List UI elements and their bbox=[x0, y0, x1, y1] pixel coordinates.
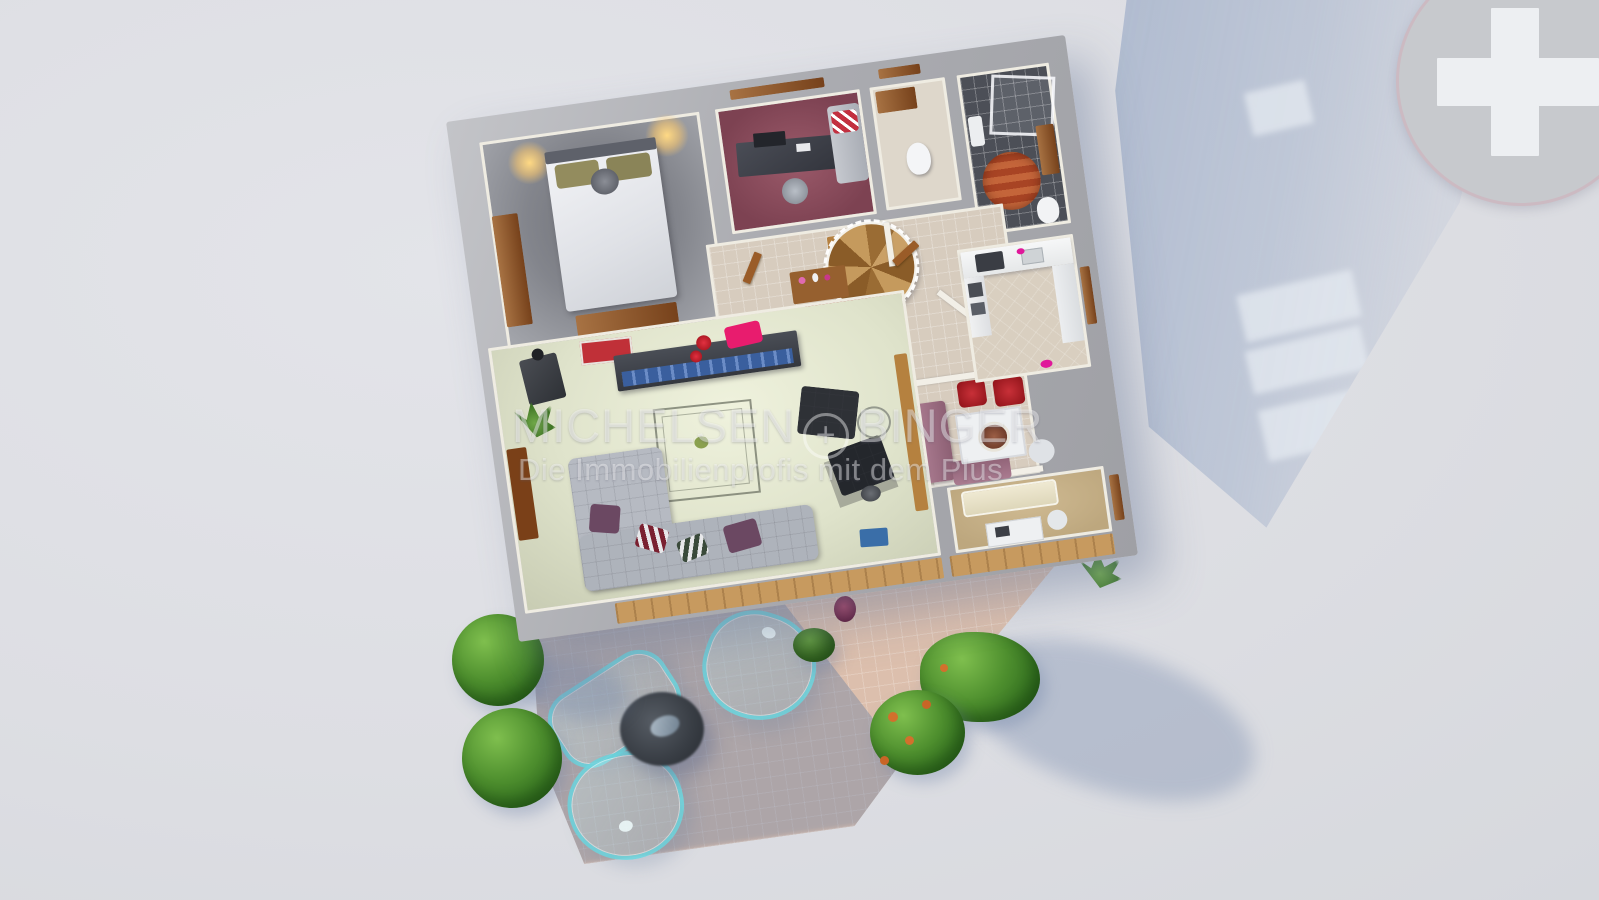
bath-cabinet bbox=[1035, 124, 1060, 176]
wardrobe bbox=[492, 213, 533, 328]
watermark-brand-right: BINGER bbox=[857, 399, 1043, 452]
toilet bbox=[1035, 196, 1060, 225]
window-frame bbox=[1109, 474, 1125, 521]
monitor bbox=[753, 131, 786, 148]
papers bbox=[796, 143, 811, 152]
floorplan-scene: MICHELSEN+BINGER Die Immobilienprofis mi… bbox=[0, 0, 1599, 900]
stone-detail bbox=[647, 711, 682, 740]
watermark-brand-line: MICHELSEN+BINGER bbox=[512, 398, 1043, 459]
blue-glass-doors bbox=[622, 348, 794, 387]
kitchen-tall-units bbox=[964, 276, 992, 338]
blue-doormat bbox=[859, 528, 888, 548]
checkered-pillow bbox=[830, 109, 859, 134]
office-chair bbox=[780, 176, 809, 205]
purple-pillow bbox=[589, 504, 621, 534]
room-bedroom bbox=[479, 112, 728, 353]
red-potted-plant bbox=[834, 596, 856, 622]
window-light-patch bbox=[1244, 80, 1314, 137]
small-bush bbox=[793, 628, 835, 662]
door-leaf bbox=[743, 251, 762, 284]
guest-desk bbox=[985, 516, 1044, 548]
pink-item bbox=[1040, 359, 1053, 369]
daybed bbox=[827, 102, 870, 184]
washbasin bbox=[967, 115, 985, 147]
cooktop bbox=[975, 251, 1005, 273]
toilet bbox=[905, 141, 933, 176]
chair-hole-detail bbox=[760, 625, 777, 640]
chair-hole-detail bbox=[618, 819, 634, 833]
building bbox=[446, 35, 1138, 642]
window-light-patch bbox=[1258, 386, 1379, 462]
room-kitchen bbox=[957, 234, 1092, 383]
watermark-tagline: Die Immobilienprofis mit dem Plus bbox=[518, 452, 1003, 488]
logo-cross-horizontal-bar bbox=[1437, 58, 1599, 106]
laptop bbox=[995, 526, 1010, 538]
room-office bbox=[715, 89, 877, 234]
double-bed bbox=[545, 143, 677, 312]
desk bbox=[736, 135, 839, 178]
watermark-brand-left: MICHELSEN bbox=[512, 399, 795, 452]
room-wc bbox=[869, 77, 962, 210]
window-frame bbox=[878, 64, 921, 80]
wc-shelf bbox=[875, 86, 918, 113]
round-rug bbox=[979, 148, 1045, 214]
guest-chair bbox=[1046, 508, 1069, 531]
fire-pit-table bbox=[620, 692, 704, 766]
bush bbox=[462, 708, 562, 808]
